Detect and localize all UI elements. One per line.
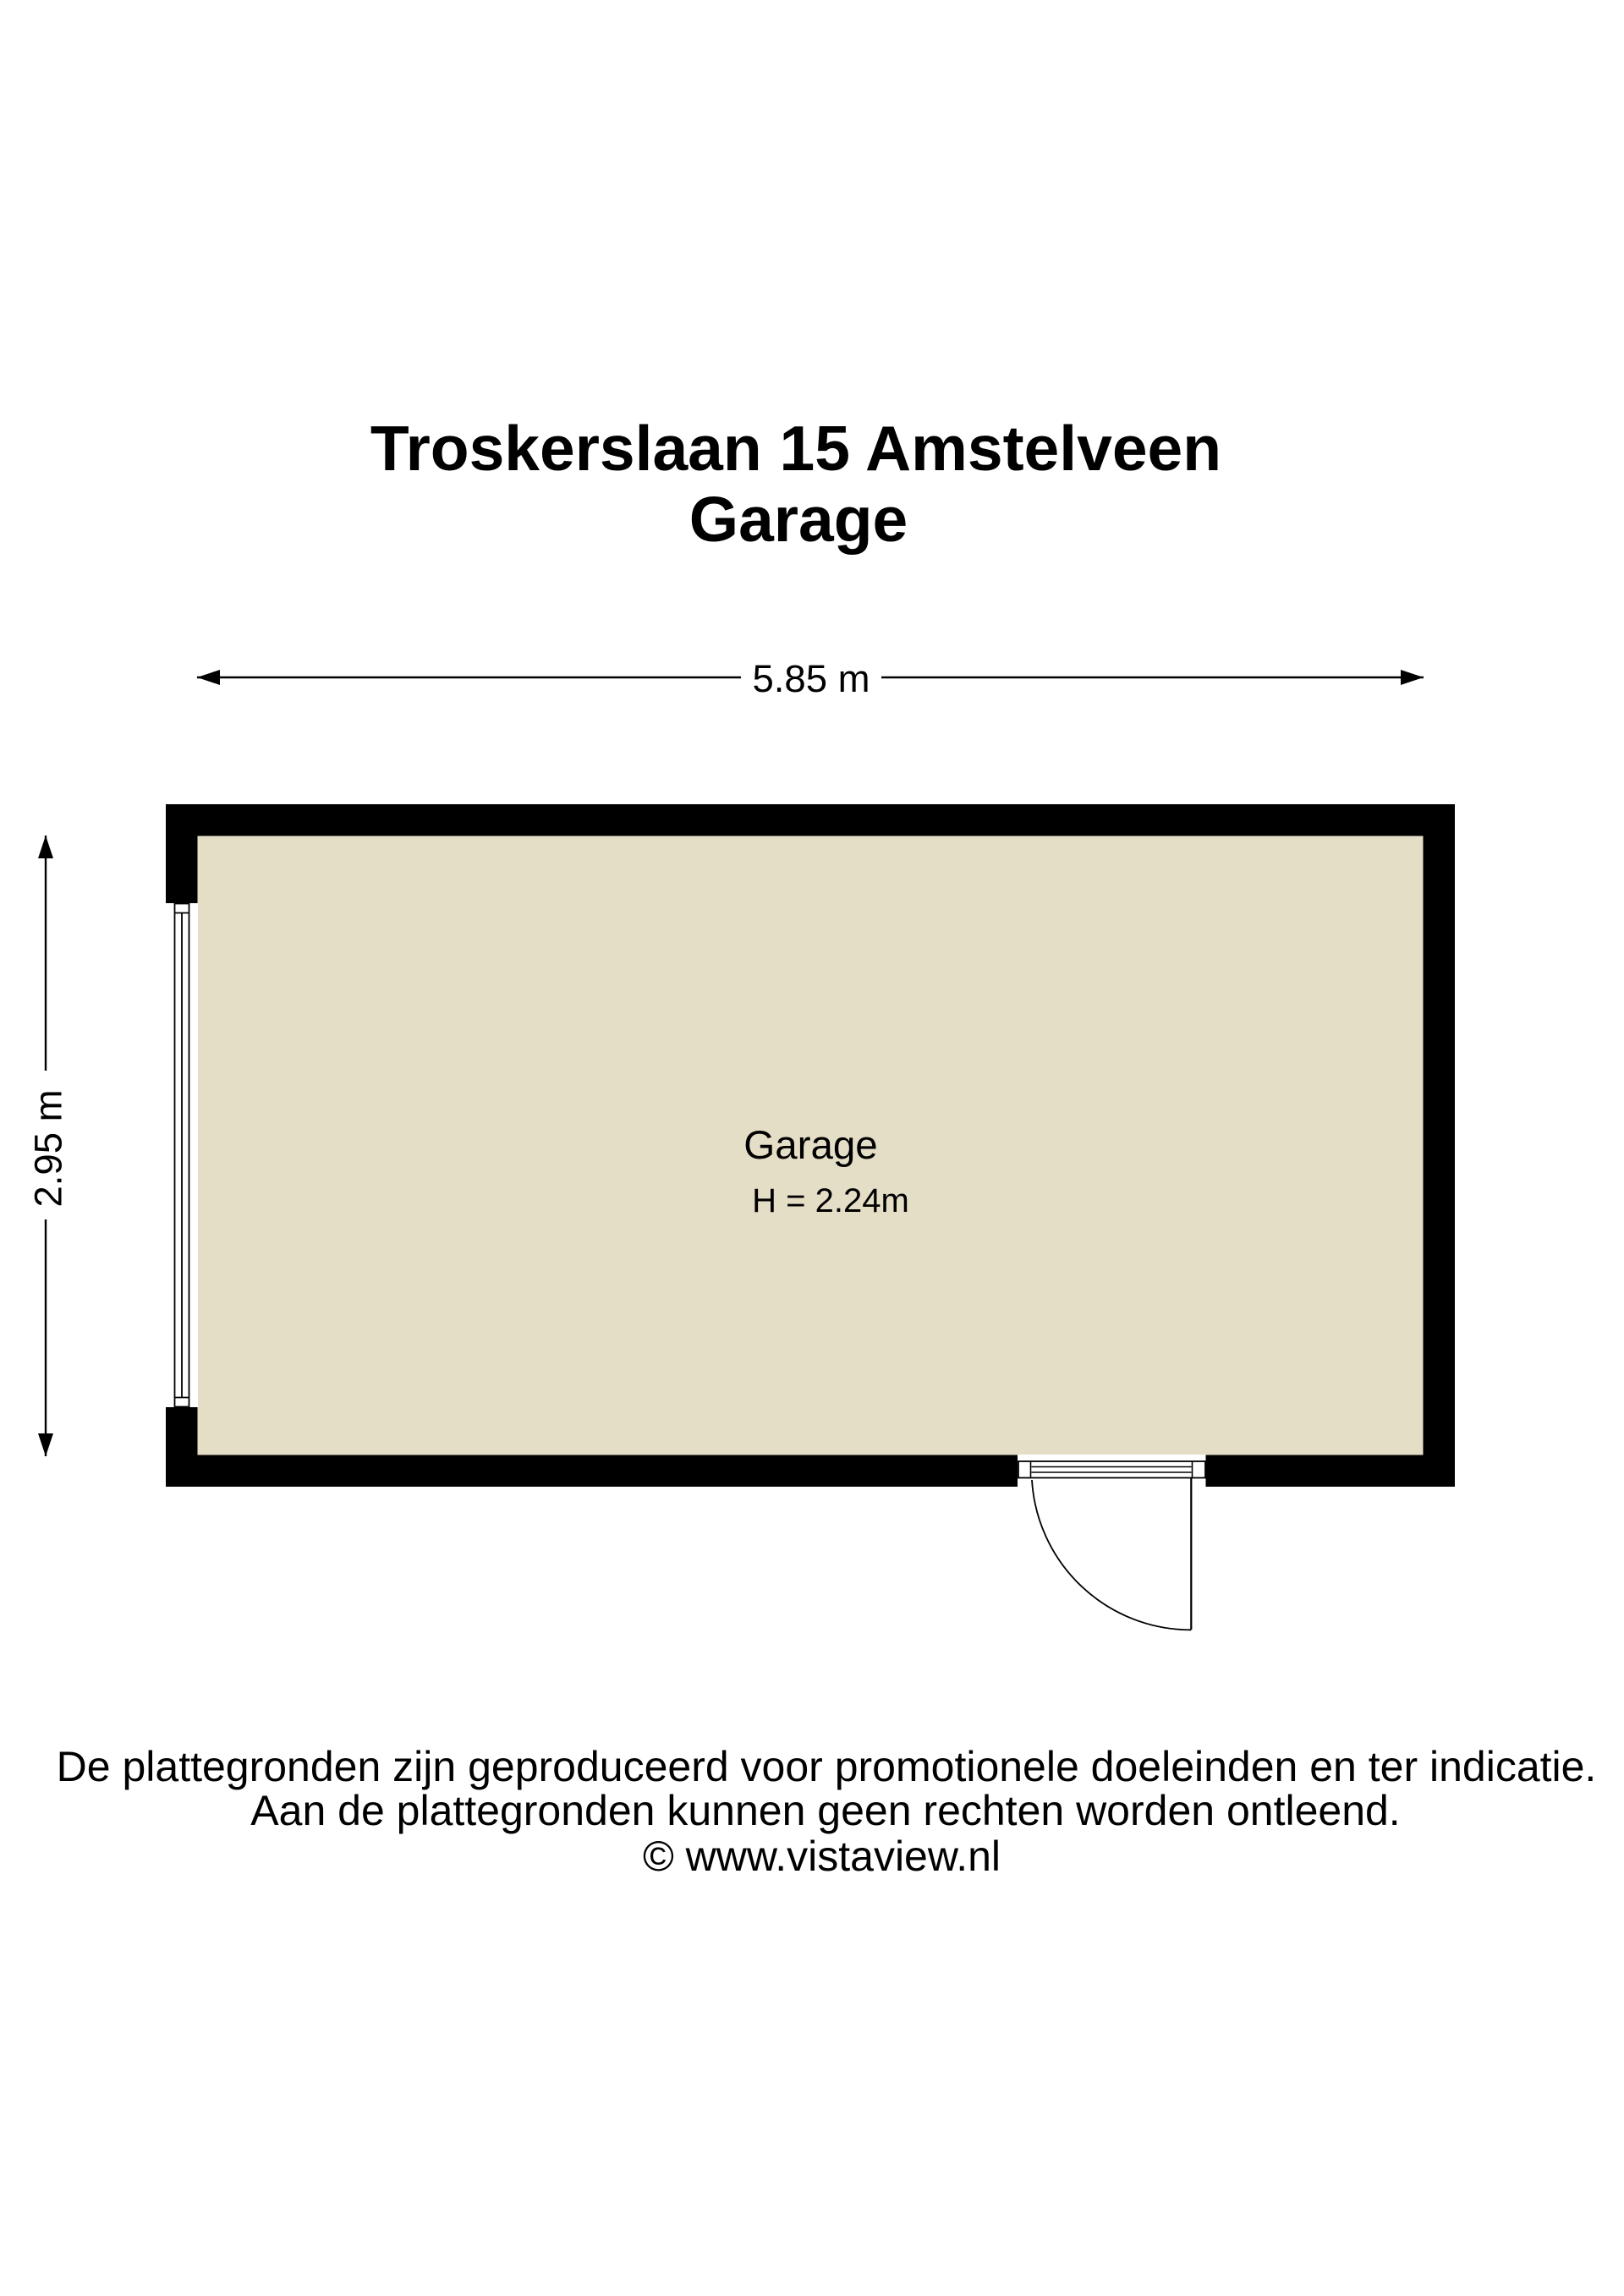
svg-text:H = 2.24m: H = 2.24m	[752, 1182, 909, 1219]
svg-text:De plattegronden zijn geproduc: De plattegronden zijn geproduceerd voor …	[57, 1743, 1597, 1790]
svg-text:Troskerslaan 15 Amstelveen: Troskerslaan 15 Amstelveen	[370, 413, 1221, 484]
svg-text:Garage: Garage	[743, 1123, 877, 1168]
svg-text:5.85 m: 5.85 m	[752, 657, 870, 700]
svg-text:2.95 m: 2.95 m	[27, 1089, 70, 1207]
svg-text:Garage: Garage	[689, 484, 908, 555]
svg-text:Aan de plattegronden kunnen ge: Aan de plattegronden kunnen geen rechten…	[250, 1787, 1400, 1834]
svg-text:© www.vistaview.nl: © www.vistaview.nl	[643, 1833, 1001, 1880]
